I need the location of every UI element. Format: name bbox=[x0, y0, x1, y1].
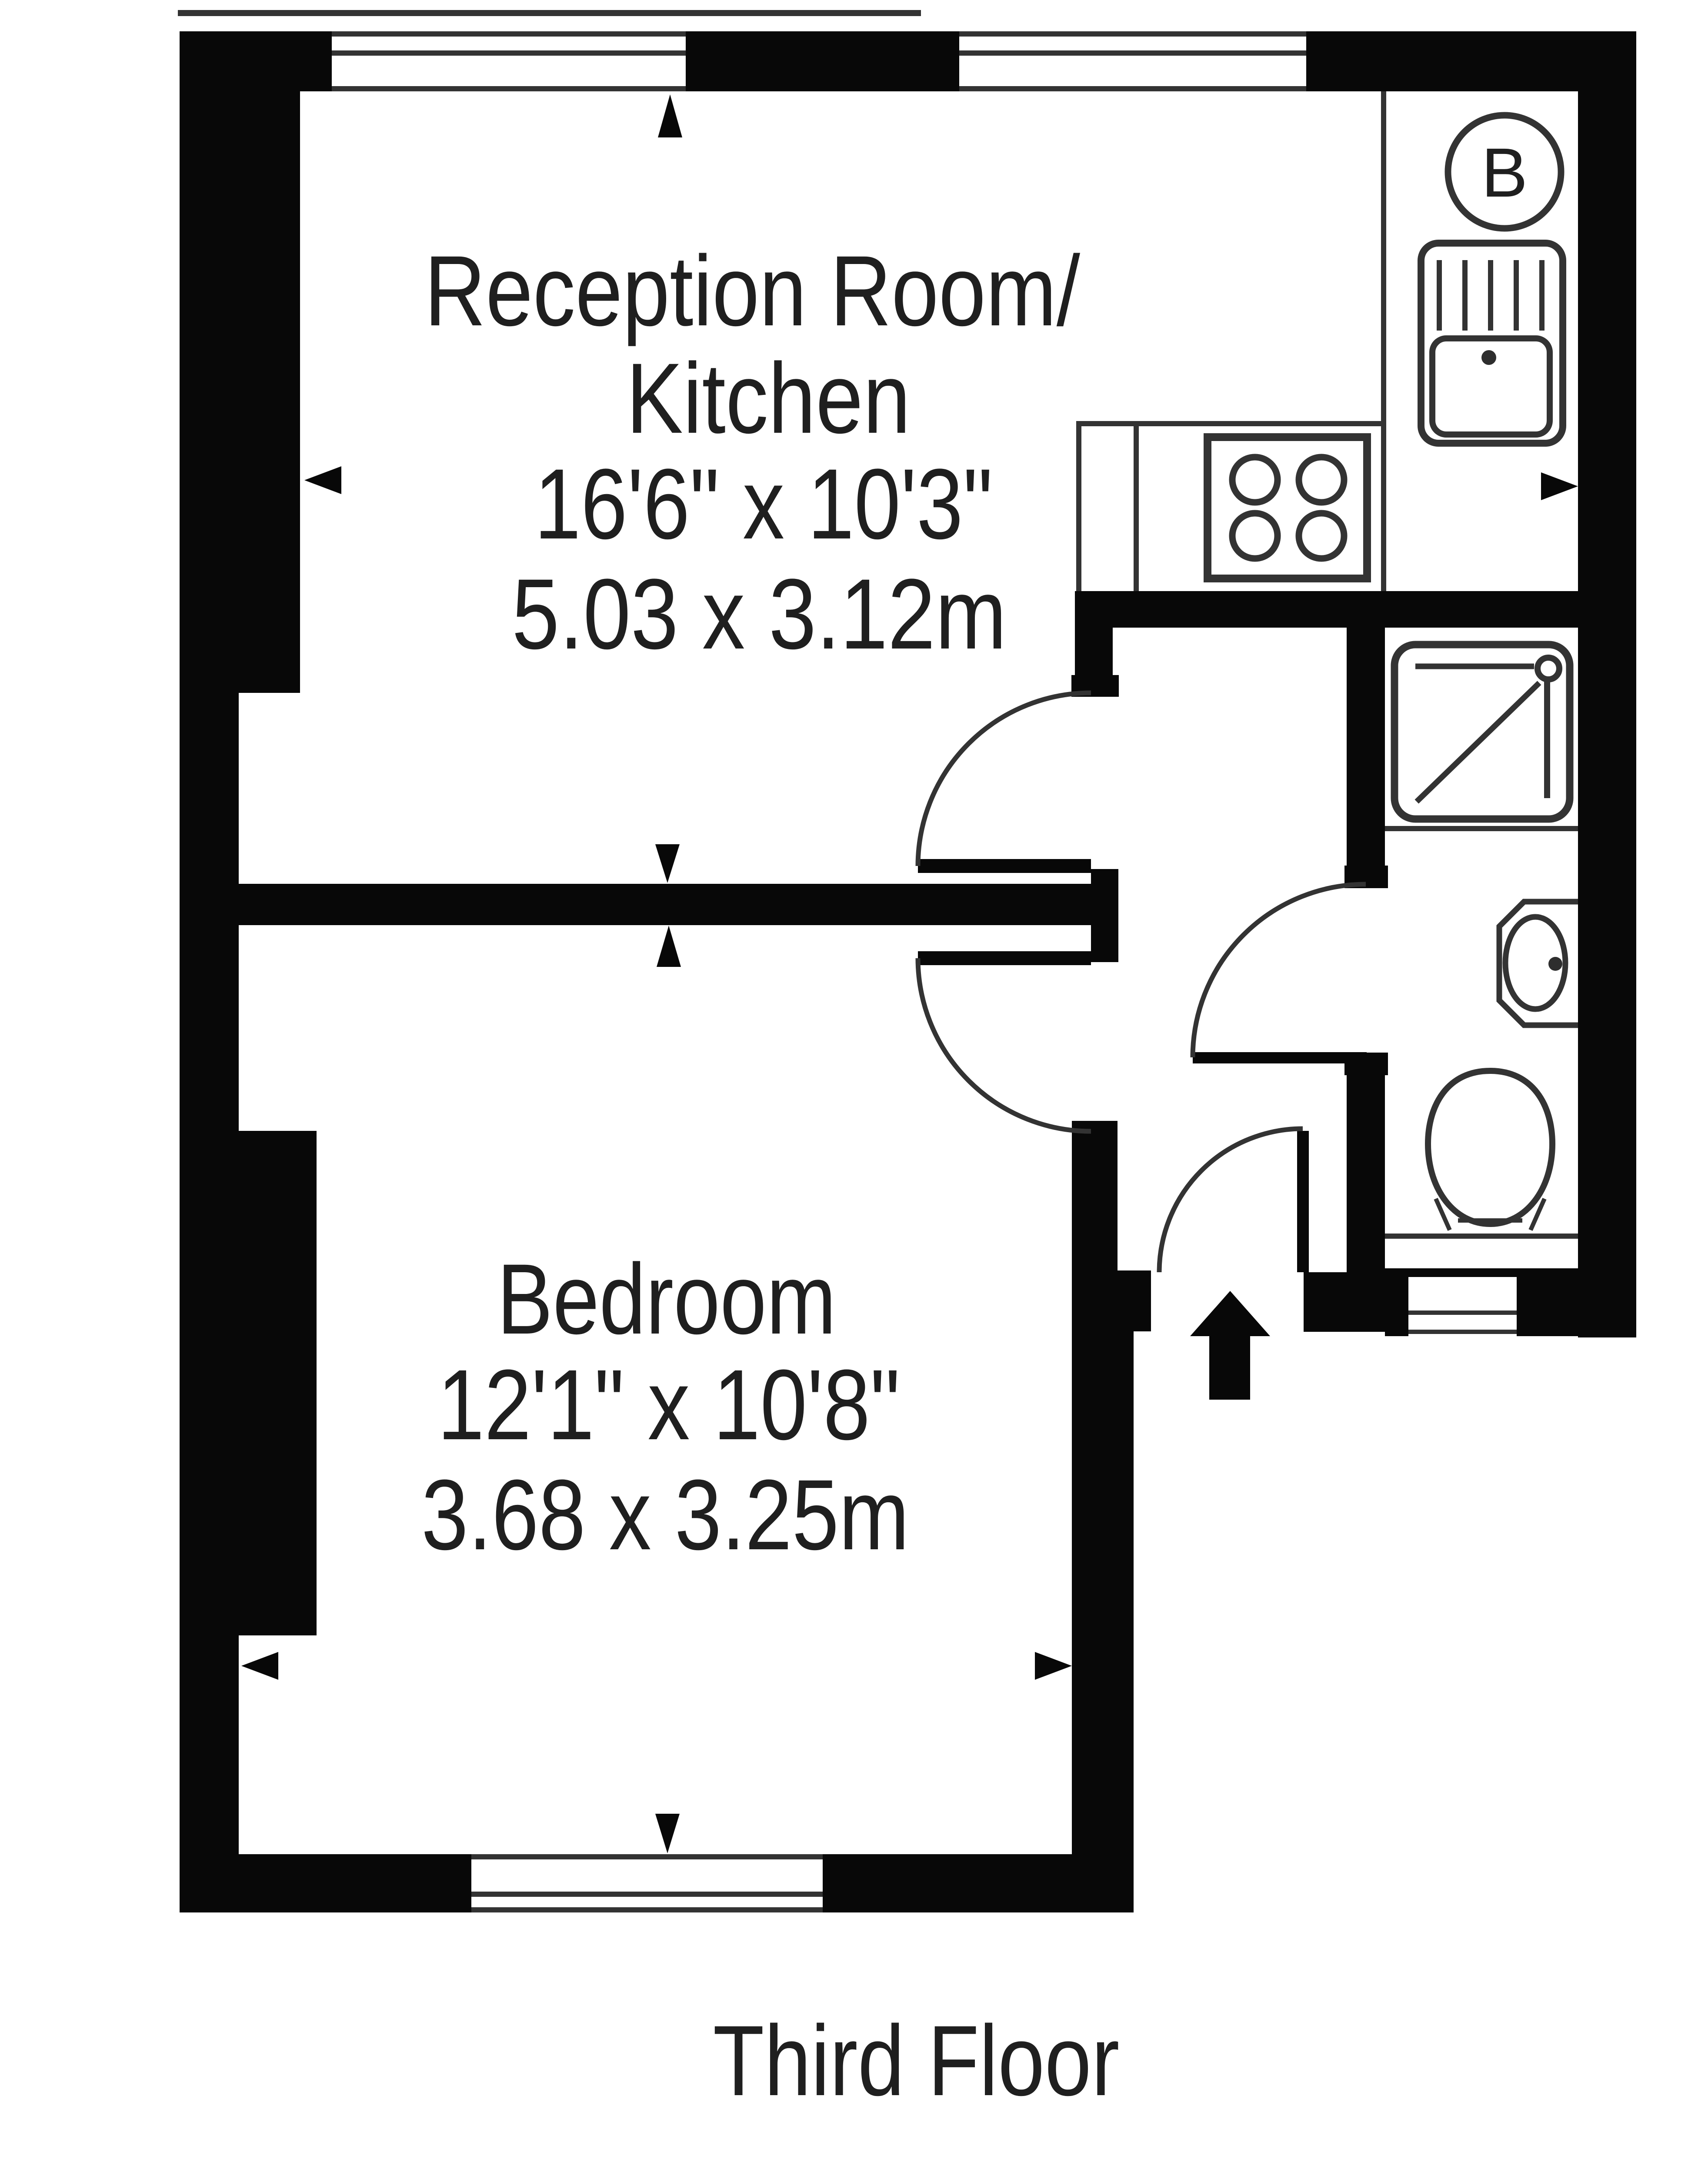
svg-text:16'6" x 10'3": 16'6" x 10'3" bbox=[534, 448, 993, 560]
svg-text:3.68 x 3.25m: 3.68 x 3.25m bbox=[421, 1459, 909, 1571]
svg-text:5.03 x 3.12m: 5.03 x 3.12m bbox=[512, 558, 1007, 670]
svg-text:Bedroom: Bedroom bbox=[497, 1243, 836, 1355]
svg-text:Reception Room/: Reception Room/ bbox=[424, 235, 1080, 347]
svg-text:Third Floor: Third Floor bbox=[713, 2005, 1120, 2116]
svg-text:B: B bbox=[1481, 134, 1528, 211]
svg-text:12'1" x 10'8": 12'1" x 10'8" bbox=[437, 1349, 900, 1461]
svg-text:Kitchen: Kitchen bbox=[626, 342, 911, 454]
